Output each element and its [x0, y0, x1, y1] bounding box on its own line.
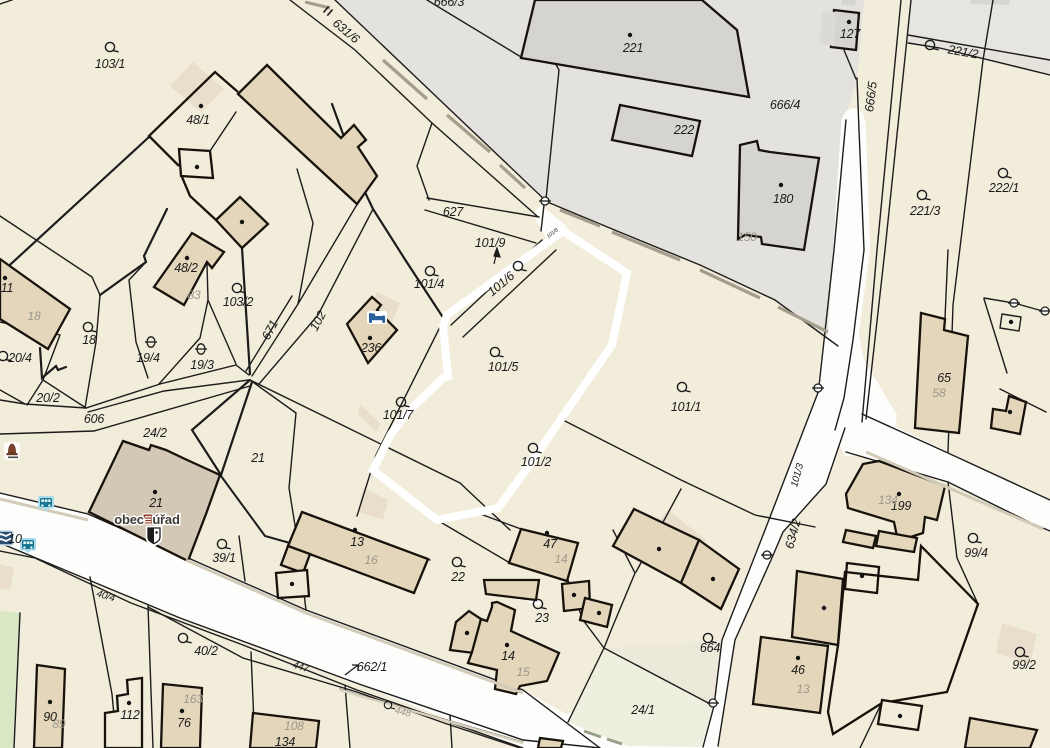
svg-text:48/1: 48/1	[186, 113, 210, 127]
svg-text:19/4: 19/4	[136, 351, 160, 365]
svg-text:24/2: 24/2	[142, 426, 167, 440]
svg-text:23: 23	[534, 611, 549, 625]
svg-text:21: 21	[250, 451, 265, 465]
svg-text:666/3: 666/3	[434, 0, 465, 9]
svg-text:664: 664	[700, 641, 721, 655]
svg-text:40/2: 40/2	[194, 644, 218, 658]
svg-text:221: 221	[622, 41, 643, 55]
svg-text:222: 222	[673, 123, 695, 137]
svg-text:150: 150	[737, 230, 757, 244]
svg-text:606: 606	[84, 412, 105, 426]
svg-text:76: 76	[177, 716, 191, 730]
svg-text:46: 46	[791, 663, 805, 677]
svg-text:14: 14	[501, 649, 515, 663]
svg-text:666/4: 666/4	[770, 98, 801, 112]
svg-text:úřad: úřad	[152, 512, 180, 527]
svg-text:20/2: 20/2	[35, 391, 60, 405]
svg-text:21: 21	[148, 496, 163, 510]
svg-text:627: 627	[443, 205, 465, 219]
svg-text:236: 236	[360, 341, 382, 355]
svg-text:18: 18	[82, 333, 96, 347]
svg-text:58: 58	[933, 386, 946, 400]
svg-text:101/1: 101/1	[671, 400, 701, 414]
svg-text:83: 83	[188, 288, 201, 302]
svg-text:101/4: 101/4	[414, 277, 445, 291]
svg-text:99/2: 99/2	[1012, 658, 1036, 672]
svg-text:16: 16	[365, 553, 378, 567]
svg-text:108: 108	[284, 719, 304, 733]
svg-text:221/3: 221/3	[909, 204, 941, 218]
svg-text:13: 13	[797, 682, 810, 696]
svg-text:101/5: 101/5	[488, 360, 519, 374]
svg-text:101/7: 101/7	[383, 408, 415, 422]
svg-text:48/2: 48/2	[174, 261, 198, 275]
svg-text:20/4: 20/4	[7, 351, 32, 365]
svg-text:10: 10	[8, 532, 22, 546]
svg-text:obec: obec	[114, 512, 144, 527]
svg-text:89: 89	[53, 717, 66, 731]
svg-text:222/1: 222/1	[988, 181, 1019, 195]
svg-text:13: 13	[350, 535, 364, 549]
svg-text:24/1: 24/1	[630, 703, 655, 717]
svg-text:163: 163	[183, 692, 203, 706]
svg-text:22: 22	[450, 570, 465, 584]
svg-text:101/9: 101/9	[475, 236, 506, 250]
svg-text:18: 18	[28, 309, 41, 323]
svg-text:101/2: 101/2	[521, 455, 552, 469]
svg-text:19/3: 19/3	[190, 358, 214, 372]
svg-text:65: 65	[937, 371, 951, 385]
svg-text:134: 134	[878, 493, 898, 507]
svg-text:47: 47	[543, 537, 558, 551]
svg-text:134: 134	[275, 735, 296, 748]
svg-text:11: 11	[1, 281, 14, 295]
svg-text:180: 180	[773, 192, 794, 206]
svg-text:99/4: 99/4	[964, 546, 988, 560]
svg-text:39/1: 39/1	[212, 551, 236, 565]
svg-text:103/1: 103/1	[95, 57, 125, 71]
svg-text:103/2: 103/2	[223, 295, 254, 309]
svg-text:15: 15	[517, 665, 530, 679]
svg-text:662/1: 662/1	[357, 660, 387, 674]
svg-text:127: 127	[840, 27, 862, 41]
svg-text:112: 112	[120, 708, 140, 722]
svg-text:14: 14	[555, 552, 568, 566]
